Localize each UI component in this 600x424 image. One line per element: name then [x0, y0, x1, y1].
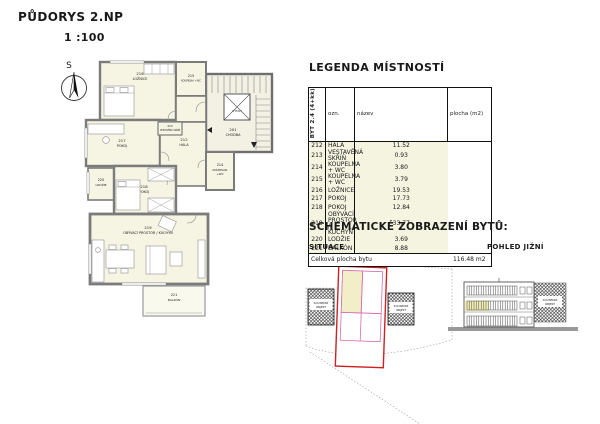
floor-plan: S VÝTAH 201 CHODBA	[62, 61, 273, 316]
room-215: 215 KOUPELNA +WC	[176, 62, 206, 96]
total-value: 116.48 m2	[448, 254, 492, 267]
north-compass-icon: S	[62, 61, 87, 101]
balcony-railings	[467, 286, 517, 326]
col-ozn: ozn.	[326, 88, 355, 142]
legend-rows: 212HALA11.52213VESTAVĚNÁ SKŘÍŇ0.93214KOU…	[309, 141, 492, 254]
legend-total-row: Celková plocha bytu 116.48 m2	[309, 254, 492, 267]
room-212-name: HALA	[179, 143, 189, 147]
room-214-number: 214	[217, 163, 223, 167]
apartment-label: BYT 2.4 (4+kk)	[311, 88, 317, 138]
room-215-name: KOUPELNA +WC	[181, 80, 201, 83]
room-221: 221 BALKÓN	[143, 286, 205, 316]
drawing-layer: S VÝTAH 201 CHODBA	[0, 0, 600, 424]
neighbor-block-right: SOUSEDNÍ OBJEKT	[388, 293, 414, 325]
room-219-number: 219	[144, 225, 152, 230]
neighbor-left-label2: OBJEKT	[316, 305, 326, 309]
dining-table-icon	[106, 250, 134, 268]
room-215-number: 215	[188, 74, 194, 78]
room-220-number: 220	[98, 178, 104, 182]
col-nazev: název	[355, 88, 448, 142]
elevation-neighbor-label2: OBJEKT	[545, 302, 555, 306]
room-219-name: OBÝVACÍ PROSTOR / KUCHYŇ	[123, 230, 173, 235]
legend-row: 215KOUPELNA + WC3.79	[309, 174, 492, 186]
page-title: PŮDORYS 2.NP	[18, 10, 123, 24]
ground-band	[448, 327, 578, 331]
desk-icon	[88, 124, 124, 134]
elevator: VÝTAH	[224, 94, 250, 120]
room-220-name: LODŽIE	[95, 182, 106, 187]
room-213: 213 VESTAVĚNÁ SKŘÍŇ	[158, 122, 182, 135]
col-plocha: plocha (m2)	[448, 88, 492, 142]
room-214-name2: +WC	[216, 172, 223, 176]
room-218-name: POKOJ	[139, 190, 149, 194]
room-213-number: 213	[167, 124, 173, 128]
wardrobe-icon	[144, 64, 174, 74]
tv-bench-icon	[198, 240, 205, 278]
situace-label: SITUACE	[309, 243, 344, 251]
apartment-label-cell: BYT 2.4 (4+kk)	[309, 88, 326, 142]
chair-icon	[103, 137, 110, 144]
north-label: S	[66, 61, 72, 71]
scale-label: 1 :100	[64, 31, 105, 44]
total-label: Celková plocha bytu	[309, 254, 448, 267]
schematic-heading: SCHEMATICKÉ ZOBRAZENÍ BYTŮ:	[309, 221, 508, 233]
room-212-number: 212	[180, 137, 188, 142]
page: S VÝTAH 201 CHODBA	[0, 0, 600, 424]
legend-heading: LEGENDA MÍSTNOSTÍ	[309, 61, 444, 74]
room-217-name: POKOJ	[117, 144, 127, 148]
room-213-name: VESTAVĚNÁ SKŘÍŇ	[160, 129, 180, 132]
entry-nook	[176, 96, 206, 122]
highlighted-unit	[341, 270, 362, 313]
room-214: 214 KOUPELNA +WC	[206, 152, 234, 190]
stairwell: VÝTAH 201 CHODBA	[206, 74, 272, 152]
neighbor-block-left: SOUSEDNÍ OBJEKT	[308, 289, 334, 325]
elevator-label: VÝTAH	[232, 108, 241, 113]
room-216-name: LOŽNICE	[133, 76, 148, 81]
room-218-number: 218	[140, 184, 148, 189]
elevation-drawing: SOUSEDNÍ OBJEKT	[448, 278, 578, 331]
situace-drawing: SOUSEDNÍ OBJEKT SOUSEDNÍ OBJEKT	[306, 241, 452, 424]
room-201-name: CHODBA	[226, 133, 242, 137]
sofa-icon	[146, 246, 166, 274]
kitchen-counter-icon	[92, 240, 104, 282]
room-221-name: BALKÓN	[168, 297, 180, 302]
room-220: 220 LODŽIE	[88, 168, 114, 200]
room-221-number: 221	[171, 293, 177, 297]
room-217-number: 217	[118, 138, 126, 143]
building-outline	[335, 261, 387, 368]
legend-table: BYT 2.4 (4+kk) ozn. název plocha (m2) 21…	[308, 87, 492, 267]
legend-header-row: BYT 2.4 (4+kk) ozn. název plocha (m2)	[309, 88, 492, 142]
coffee-table-icon	[170, 252, 182, 266]
pohled-label: POHLED JIŽNÍ	[487, 243, 544, 251]
legend-row: 217POKOJ17.73	[309, 195, 492, 204]
neighbor-right-label2: OBJEKT	[396, 308, 406, 312]
elevation-neighbor-block: SOUSEDNÍ OBJEKT	[534, 283, 566, 322]
room-201-number: 201	[229, 127, 237, 132]
legend-row: 216LOŽNICE19.53	[309, 186, 492, 195]
room-216-number: 216	[136, 71, 144, 76]
